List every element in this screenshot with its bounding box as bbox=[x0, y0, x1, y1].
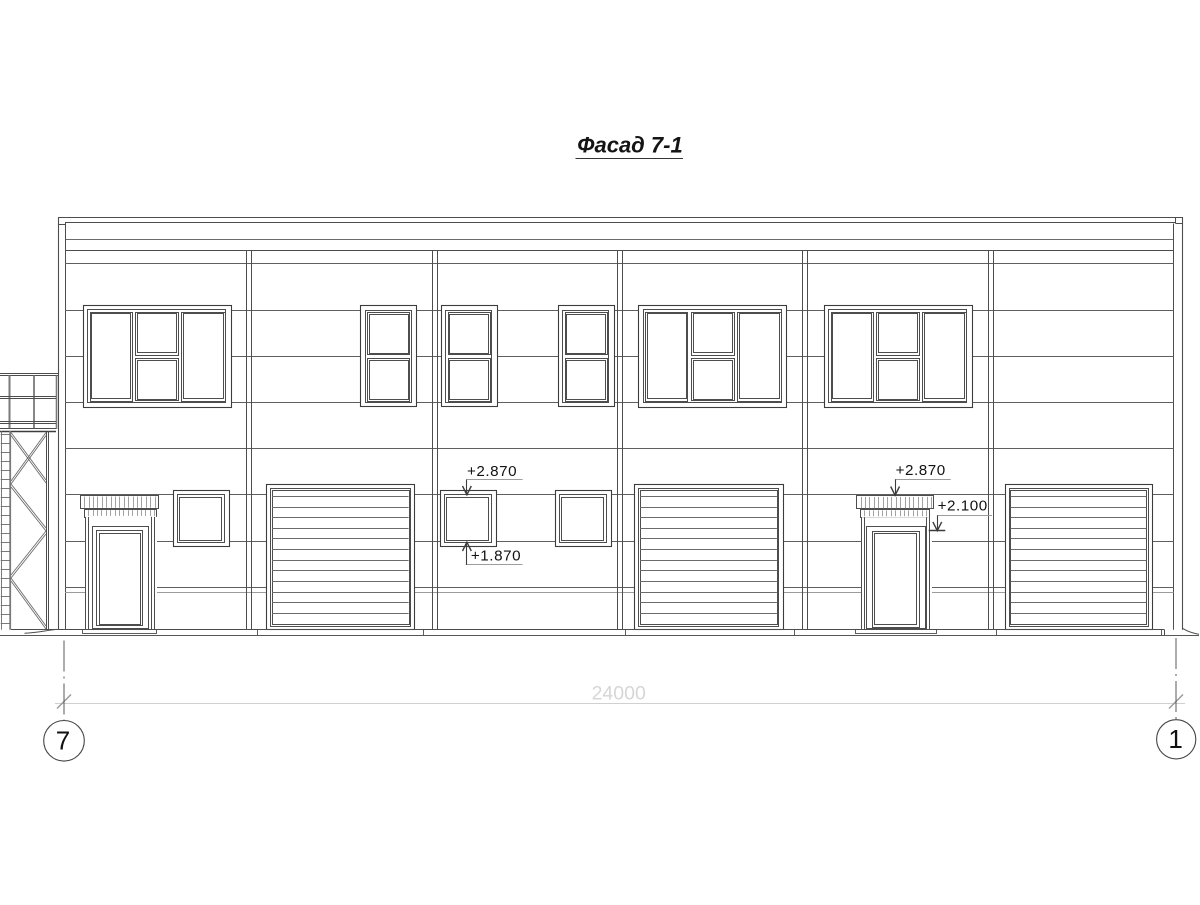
svg-text:24000: 24000 bbox=[592, 682, 646, 704]
svg-text:7: 7 bbox=[56, 726, 70, 756]
svg-text:Фасад 7-1: Фасад 7-1 bbox=[577, 132, 682, 157]
svg-text:1: 1 bbox=[1168, 724, 1182, 754]
svg-text:+2.870: +2.870 bbox=[896, 462, 946, 479]
svg-text:+2.870: +2.870 bbox=[467, 463, 517, 480]
svg-text:+2.100: +2.100 bbox=[938, 497, 988, 514]
svg-text:+1.870: +1.870 bbox=[471, 548, 521, 565]
